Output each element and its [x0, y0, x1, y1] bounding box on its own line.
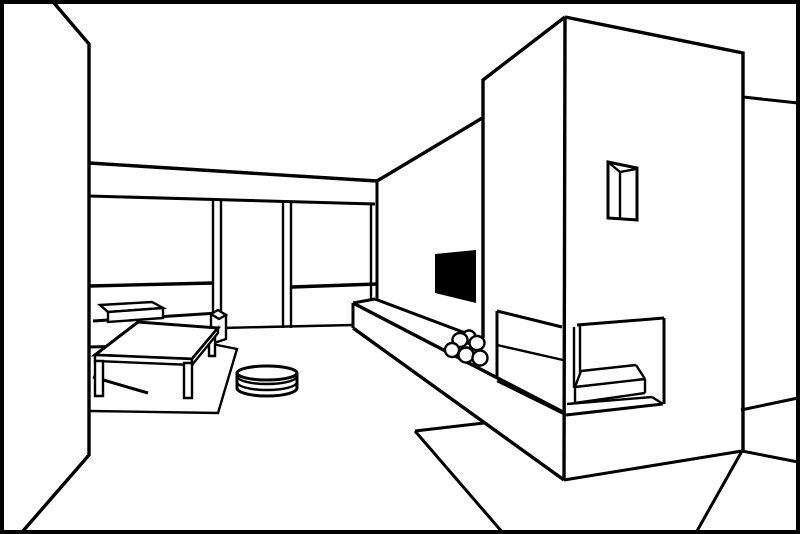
log-end: [473, 351, 488, 366]
sofa-side-shelf: [100, 302, 163, 322]
door-header-line: [89, 196, 375, 204]
table-leg-front-left: [95, 361, 103, 396]
log-end: [445, 343, 459, 357]
right-wall-base-line: [741, 398, 798, 410]
tv-screen: [435, 250, 476, 303]
ceiling-edge-line: [89, 163, 377, 181]
left-wall: [23, 3, 89, 531]
log-end: [470, 336, 485, 350]
firewood-logs: [445, 331, 488, 366]
pouf-top-cushion: [237, 366, 297, 380]
column-front-corner-edge: [564, 17, 565, 480]
fireplace-vent-window: [608, 162, 637, 220]
sliding-door-frame-right: [283, 203, 291, 328]
mat-right-side-edge: [697, 451, 742, 531]
floor-pouf: [237, 366, 297, 396]
bench-end-top-edge: [353, 299, 375, 303]
table-leg-front-right: [184, 363, 192, 398]
right-wall-top-edge: [377, 117, 484, 181]
log-end: [459, 348, 474, 363]
living-room-line-drawing: [0, 0, 800, 534]
mat-left-side-edge: [415, 431, 503, 533]
window-sill-rail-left: [90, 283, 213, 286]
window-sill-rail-right: [292, 284, 377, 287]
mat-left-top-edge: [415, 423, 484, 431]
coffee-table: [95, 322, 218, 398]
wall-base-line: [221, 325, 353, 328]
mat-right-top-edge: [742, 451, 798, 462]
back-wall-with-sliding-doors: [89, 117, 484, 329]
line-drawing-canvas: [0, 0, 800, 534]
right-side-wall: [741, 97, 798, 410]
right-wall-top-line: [743, 97, 798, 103]
